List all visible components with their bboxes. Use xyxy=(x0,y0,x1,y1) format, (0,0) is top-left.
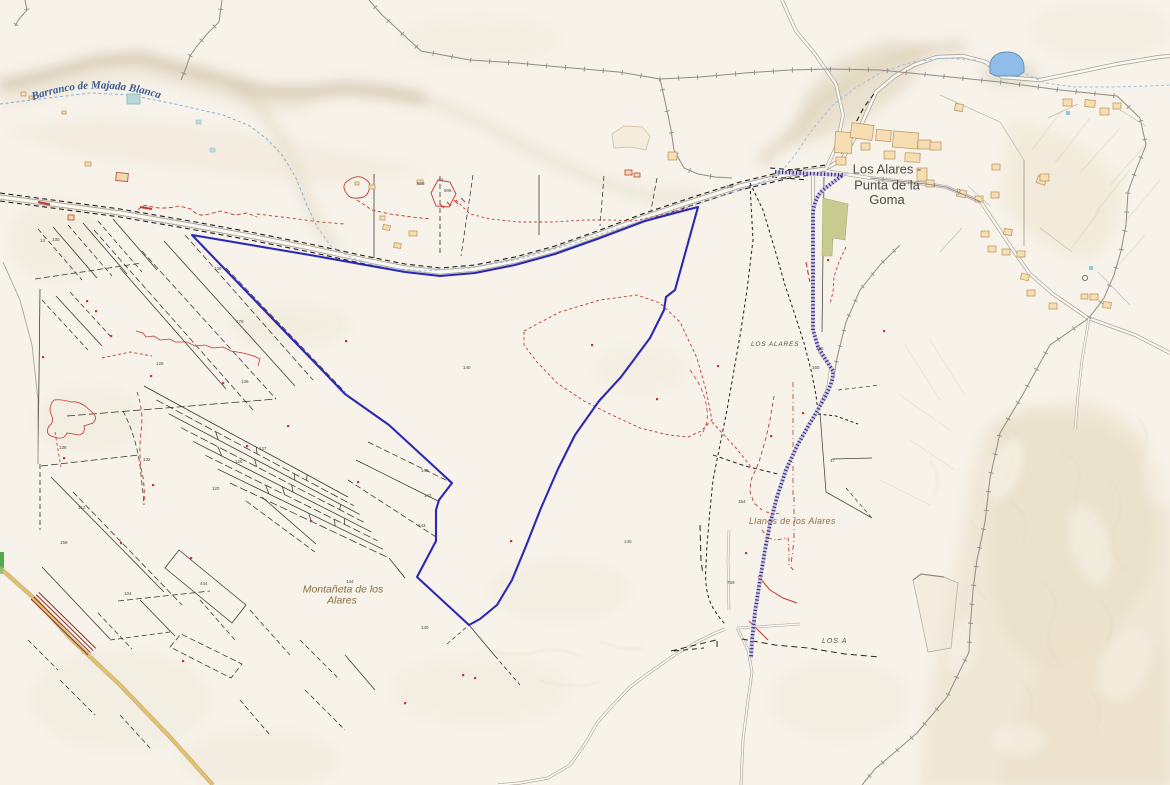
svg-text:140: 140 xyxy=(421,625,429,630)
svg-text:142: 142 xyxy=(424,493,432,498)
svg-text:144: 144 xyxy=(346,579,354,584)
svg-text:LOS ALARES: LOS ALARES xyxy=(751,341,799,348)
svg-text:47: 47 xyxy=(830,458,836,463)
svg-text:132: 132 xyxy=(143,457,151,462)
svg-text:154: 154 xyxy=(738,499,746,504)
svg-text:140: 140 xyxy=(463,365,471,370)
svg-text:102: 102 xyxy=(726,184,734,189)
svg-text:178: 178 xyxy=(236,319,244,324)
svg-text:104: 104 xyxy=(124,591,132,596)
svg-text:444: 444 xyxy=(200,581,208,586)
svg-text:138: 138 xyxy=(59,445,67,450)
svg-text:112: 112 xyxy=(78,505,86,510)
svg-text:Llanos de los Alares: Llanos de los Alares xyxy=(749,516,836,526)
svg-text:14: 14 xyxy=(40,238,46,243)
svg-text:149: 149 xyxy=(421,468,429,473)
svg-text:Los Alares -: Los Alares - xyxy=(853,162,922,177)
svg-text:156: 156 xyxy=(816,346,824,351)
svg-text:126: 126 xyxy=(235,459,243,464)
svg-text:128: 128 xyxy=(156,361,164,366)
svg-text:120: 120 xyxy=(212,486,220,491)
svg-text:140: 140 xyxy=(624,539,632,544)
svg-text:759: 759 xyxy=(727,580,735,585)
svg-text:150: 150 xyxy=(812,365,820,370)
svg-text:Goma: Goma xyxy=(869,192,905,207)
svg-text:Punta de la: Punta de la xyxy=(854,178,921,193)
svg-text:143: 143 xyxy=(418,523,426,528)
svg-text:136: 136 xyxy=(241,379,249,384)
svg-text:906: 906 xyxy=(444,188,452,193)
svg-text:606: 606 xyxy=(417,181,425,186)
svg-text:127: 127 xyxy=(259,446,267,451)
svg-text:130: 130 xyxy=(52,237,60,242)
svg-text:159: 159 xyxy=(60,540,68,545)
svg-text:LOS A: LOS A xyxy=(822,638,847,645)
svg-text:44: 44 xyxy=(438,177,444,182)
svg-text:Alares: Alares xyxy=(326,595,358,607)
svg-text:136: 136 xyxy=(214,266,222,271)
